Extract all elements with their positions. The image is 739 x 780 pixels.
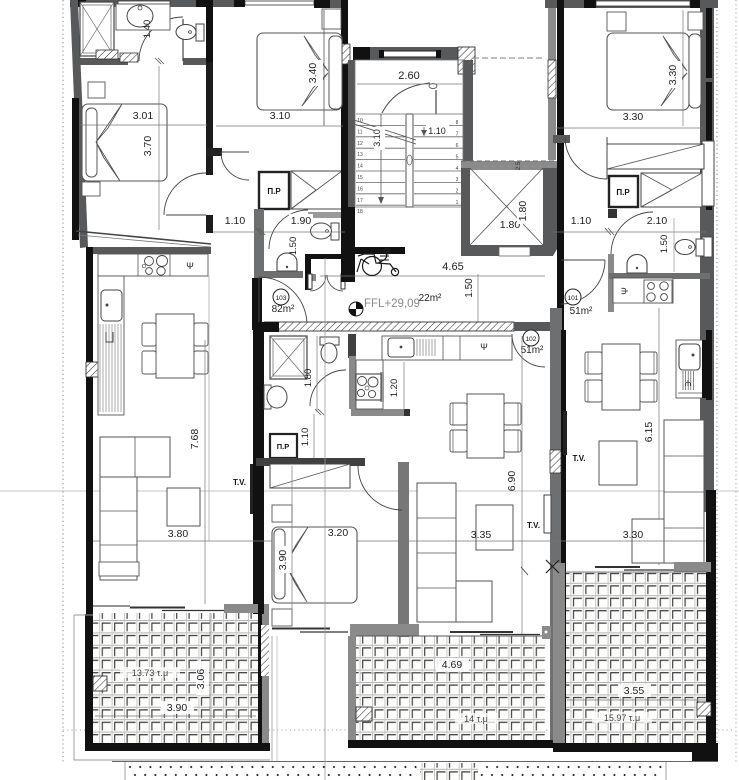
svg-text:7: 7 xyxy=(456,132,459,138)
svg-text:1.80: 1.80 xyxy=(517,201,529,222)
svg-text:1: 1 xyxy=(456,200,459,206)
svg-text:Ψ: Ψ xyxy=(620,287,630,295)
svg-text:1.90: 1.90 xyxy=(291,215,312,227)
svg-text:2.10: 2.10 xyxy=(647,215,668,227)
svg-text:3.30: 3.30 xyxy=(623,111,644,123)
svg-text:Ψ: Ψ xyxy=(684,378,691,387)
svg-text:2.5: 2.5 xyxy=(516,161,522,170)
svg-text:3.10: 3.10 xyxy=(372,129,382,147)
svg-text:14 τ.μ: 14 τ.μ xyxy=(464,714,488,724)
svg-text:4.65: 4.65 xyxy=(442,261,463,273)
svg-text:3.40: 3.40 xyxy=(307,63,319,84)
svg-text:7.68: 7.68 xyxy=(189,429,201,450)
svg-text:8: 8 xyxy=(456,120,459,126)
svg-text:1.10: 1.10 xyxy=(300,428,311,447)
svg-text:10: 10 xyxy=(357,118,363,124)
svg-text:12: 12 xyxy=(357,141,363,147)
svg-text:3.90: 3.90 xyxy=(167,702,188,714)
svg-text:T.V.: T.V. xyxy=(527,521,540,530)
svg-text:1.50: 1.50 xyxy=(464,278,475,298)
svg-text:3.35: 3.35 xyxy=(471,529,492,541)
svg-text:13: 13 xyxy=(357,152,363,158)
svg-text:1.40: 1.40 xyxy=(142,20,153,39)
svg-text:3.20: 3.20 xyxy=(328,527,349,539)
svg-text:T.V.: T.V. xyxy=(233,478,246,487)
svg-text:5: 5 xyxy=(456,154,459,160)
svg-text:3.30: 3.30 xyxy=(667,65,679,86)
svg-text:3.10: 3.10 xyxy=(270,110,291,122)
svg-text:11: 11 xyxy=(357,129,362,135)
svg-text:3: 3 xyxy=(456,177,459,183)
svg-text:1.50: 1.50 xyxy=(288,237,299,256)
svg-text:51m²: 51m² xyxy=(570,306,593,317)
svg-text:3.30: 3.30 xyxy=(623,529,644,541)
svg-text:15.97 τ.μ: 15.97 τ.μ xyxy=(604,713,640,723)
svg-text:51m²: 51m² xyxy=(521,345,544,356)
svg-text:2.60: 2.60 xyxy=(398,70,419,82)
svg-text:T.V.: T.V. xyxy=(572,454,585,463)
svg-text:6.90: 6.90 xyxy=(506,471,518,492)
svg-text:Π.Ρ: Π.Ρ xyxy=(267,187,281,196)
svg-text:Ψ: Ψ xyxy=(480,342,488,352)
svg-text:6: 6 xyxy=(456,143,459,149)
svg-text:102: 102 xyxy=(526,336,537,343)
svg-text:13.73 τ.μ: 13.73 τ.μ xyxy=(132,668,168,678)
svg-text:18: 18 xyxy=(357,209,363,215)
svg-text:1.10: 1.10 xyxy=(571,215,592,227)
svg-text:1.80: 1.80 xyxy=(303,369,314,388)
svg-text:3.70: 3.70 xyxy=(142,136,154,157)
svg-text:22m²: 22m² xyxy=(419,293,442,304)
svg-text:1.10: 1.10 xyxy=(428,126,446,136)
svg-text:103: 103 xyxy=(276,295,287,302)
svg-text:4.69: 4.69 xyxy=(442,659,463,671)
svg-text:3.55: 3.55 xyxy=(624,685,645,697)
svg-text:17: 17 xyxy=(357,198,363,204)
svg-text:1.50: 1.50 xyxy=(659,235,670,254)
svg-text:1.10: 1.10 xyxy=(225,215,246,227)
svg-text:16: 16 xyxy=(357,186,363,192)
svg-text:3.06: 3.06 xyxy=(195,669,207,690)
svg-text:15: 15 xyxy=(357,175,363,181)
svg-text:82m²: 82m² xyxy=(272,304,295,315)
svg-text:101: 101 xyxy=(568,295,579,302)
svg-text:Π.Ρ: Π.Ρ xyxy=(616,188,630,197)
svg-text:Ψ: Ψ xyxy=(186,261,194,271)
svg-text:6.15: 6.15 xyxy=(643,422,655,443)
svg-text:4: 4 xyxy=(456,166,459,172)
svg-text:2: 2 xyxy=(456,189,459,195)
svg-text:14: 14 xyxy=(357,164,363,170)
svg-text:FFL+29,09: FFL+29,09 xyxy=(364,298,420,310)
svg-text:3.80: 3.80 xyxy=(168,528,189,540)
svg-text:Π.Ρ: Π.Ρ xyxy=(277,442,290,451)
svg-text:1.20: 1.20 xyxy=(389,379,400,398)
svg-text:3.01: 3.01 xyxy=(133,110,154,122)
svg-text:3.90: 3.90 xyxy=(277,550,289,571)
